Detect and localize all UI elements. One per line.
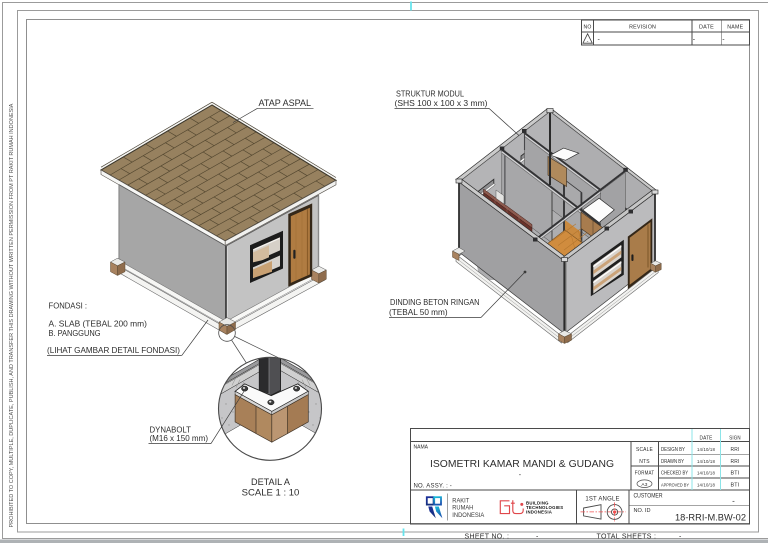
svg-text:RAKIT: RAKIT	[452, 497, 469, 504]
svg-text:ISOMETRI KAMAR MANDI & GUDANG: ISOMETRI KAMAR MANDI & GUDANG	[430, 459, 614, 470]
svg-text:-: -	[722, 37, 725, 44]
svg-text:(M16 x 150 mm): (M16 x 150 mm)	[150, 434, 209, 443]
svg-text:RUMAH: RUMAH	[452, 505, 473, 512]
svg-text:DRAWN BY: DRAWN BY	[661, 459, 684, 465]
svg-text:SHEET NO. :: SHEET NO. :	[465, 534, 510, 541]
svg-text:APPROVED BY: APPROVED BY	[661, 482, 690, 488]
svg-text:TOTAL SHEETS :: TOTAL SHEETS :	[597, 534, 657, 541]
svg-text:DINDING BETON RINGAN: DINDING BETON RINGAN	[390, 298, 480, 307]
svg-text:SCALE: SCALE	[636, 447, 653, 453]
svg-text:BTI: BTI	[731, 471, 740, 477]
svg-text:1ST ANGLE: 1ST ANGLE	[585, 497, 619, 503]
svg-text:DATE: DATE	[700, 436, 713, 442]
svg-text:-: -	[693, 37, 696, 44]
svg-text:DATE: DATE	[699, 25, 714, 31]
svg-text:CUSTOMER: CUSTOMER	[634, 493, 664, 499]
svg-text:NO. ID: NO. ID	[634, 508, 651, 514]
svg-text:-: -	[732, 497, 735, 506]
svg-text:NTS: NTS	[639, 459, 650, 465]
svg-text:RRI: RRI	[731, 447, 740, 453]
svg-text:A. SLAB (TEBAL 200 mm): A. SLAB (TEBAL 200 mm)	[49, 320, 148, 329]
svg-text:B. PANGGUNG: B. PANGGUNG	[49, 329, 101, 338]
svg-text:NAME: NAME	[727, 25, 743, 31]
svg-text:INDONESIA: INDONESIA	[526, 510, 552, 515]
svg-text:(SHS 100 x 100 x 3 mm): (SHS 100 x 100 x 3 mm)	[395, 99, 488, 108]
svg-text:NAMA: NAMA	[414, 445, 429, 451]
svg-text:REVISION: REVISION	[629, 25, 656, 31]
svg-text:14/10/18: 14/10/18	[697, 459, 715, 465]
svg-text:SCALE 1 : 10: SCALE 1 : 10	[242, 487, 300, 497]
svg-text:NO: NO	[584, 25, 592, 31]
svg-text:FORMAT: FORMAT	[635, 471, 655, 477]
svg-text:BTI: BTI	[731, 482, 740, 488]
svg-text:-: -	[519, 472, 522, 479]
svg-text:DETAIL A: DETAIL A	[251, 477, 290, 487]
svg-text:STRUKTUR MODUL: STRUKTUR MODUL	[396, 90, 464, 99]
svg-text:PROHIBITED TO COPY, MULTIPLE,: PROHIBITED TO COPY, MULTIPLE, DUPLICATE,…	[9, 103, 15, 528]
svg-text:(LIHAT GAMBAR DETAIL FONDASI): (LIHAT GAMBAR DETAIL FONDASI)	[47, 345, 180, 355]
svg-text:A3: A3	[641, 482, 647, 488]
svg-text:SIGN: SIGN	[729, 436, 741, 442]
svg-text:14/10/18: 14/10/18	[697, 471, 715, 477]
svg-text:14/10/18: 14/10/18	[697, 482, 715, 488]
svg-text:FONDASI :: FONDASI :	[49, 302, 88, 311]
svg-text:(TEBAL 50 mm): (TEBAL 50 mm)	[389, 308, 448, 317]
svg-text:18-RRI-M.BW-02: 18-RRI-M.BW-02	[675, 513, 746, 524]
svg-text:ATAP ASPAL: ATAP ASPAL	[259, 98, 312, 108]
svg-text:-: -	[587, 39, 589, 45]
svg-text:14/10/18: 14/10/18	[697, 447, 715, 453]
svg-text:NO. ASSY. : -: NO. ASSY. : -	[414, 484, 453, 490]
svg-text:DYNABOLT: DYNABOLT	[150, 425, 191, 434]
svg-text:-: -	[598, 37, 601, 44]
svg-text:RRI: RRI	[731, 459, 740, 465]
svg-text:INDONESIA: INDONESIA	[452, 512, 485, 519]
svg-text:CHECKED BY: CHECKED BY	[661, 471, 688, 477]
svg-text:DESIGN BY: DESIGN BY	[661, 447, 685, 453]
